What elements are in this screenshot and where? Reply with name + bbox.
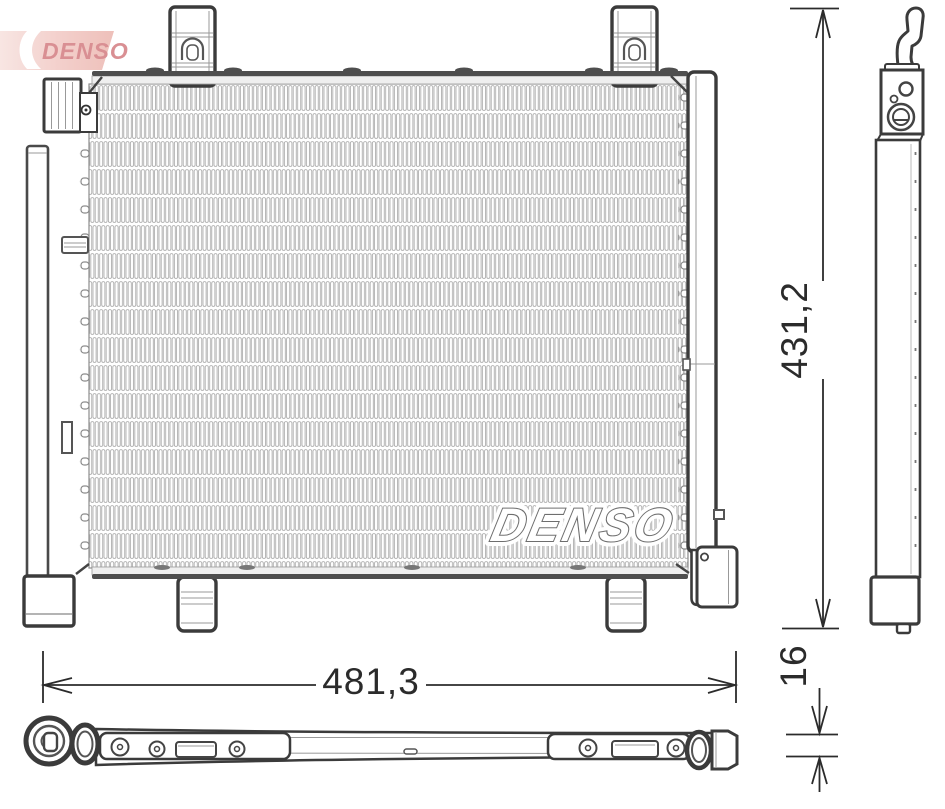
width-dimension-label: 481,3 [322, 661, 420, 702]
slide-slot [176, 742, 216, 757]
right-tank-body [688, 72, 716, 552]
chamfer-bottom-left [76, 564, 89, 574]
port-tiny-circle [891, 96, 898, 103]
slide-slot [612, 741, 658, 757]
bolt-hole [701, 553, 708, 560]
side-body [876, 140, 920, 577]
core-left-serration [80, 95, 90, 561]
right-tank [683, 72, 737, 607]
side-foot-tab [897, 624, 910, 633]
condenser-technical-drawing: DENSO [0, 0, 945, 809]
denso-watermark-text: DENSO [487, 499, 680, 551]
bottom-header-bar [92, 565, 688, 579]
denso-logo-text: DENSO [42, 38, 129, 64]
drier-lower-tab [62, 422, 72, 453]
port-small-circle [900, 83, 913, 96]
dimension-depth: 16 [773, 644, 838, 792]
dimension-width: 481,3 [43, 651, 736, 703]
height-dimension-label: 431,2 [774, 281, 815, 379]
front-view: DENSO DENSO [24, 7, 737, 631]
side-foot [871, 577, 919, 624]
depth-dimension-label: 16 [773, 644, 814, 687]
bottom-bracket-right [607, 577, 645, 631]
center-slot [404, 749, 417, 754]
denso-logo: DENSO [0, 31, 129, 70]
side-hook-bracket [897, 8, 923, 72]
tank-divider-tab [683, 359, 690, 370]
top-left-bracket [44, 79, 81, 132]
bottom-bracket-left [178, 577, 216, 631]
drier-connector-tab [62, 237, 88, 253]
condenser-core [89, 84, 688, 568]
receiver-drier-tube [27, 146, 48, 577]
bottom-view [26, 718, 737, 769]
receiver-drier-foot [24, 576, 74, 626]
technical-drawing-canvas: DENSO [0, 0, 945, 809]
tank-side-tab [714, 510, 724, 519]
denso-watermark: DENSO DENSO [487, 499, 680, 551]
pipe-stub [44, 733, 57, 751]
side-view [871, 8, 923, 633]
dimension-height: 431,2 [774, 9, 839, 629]
